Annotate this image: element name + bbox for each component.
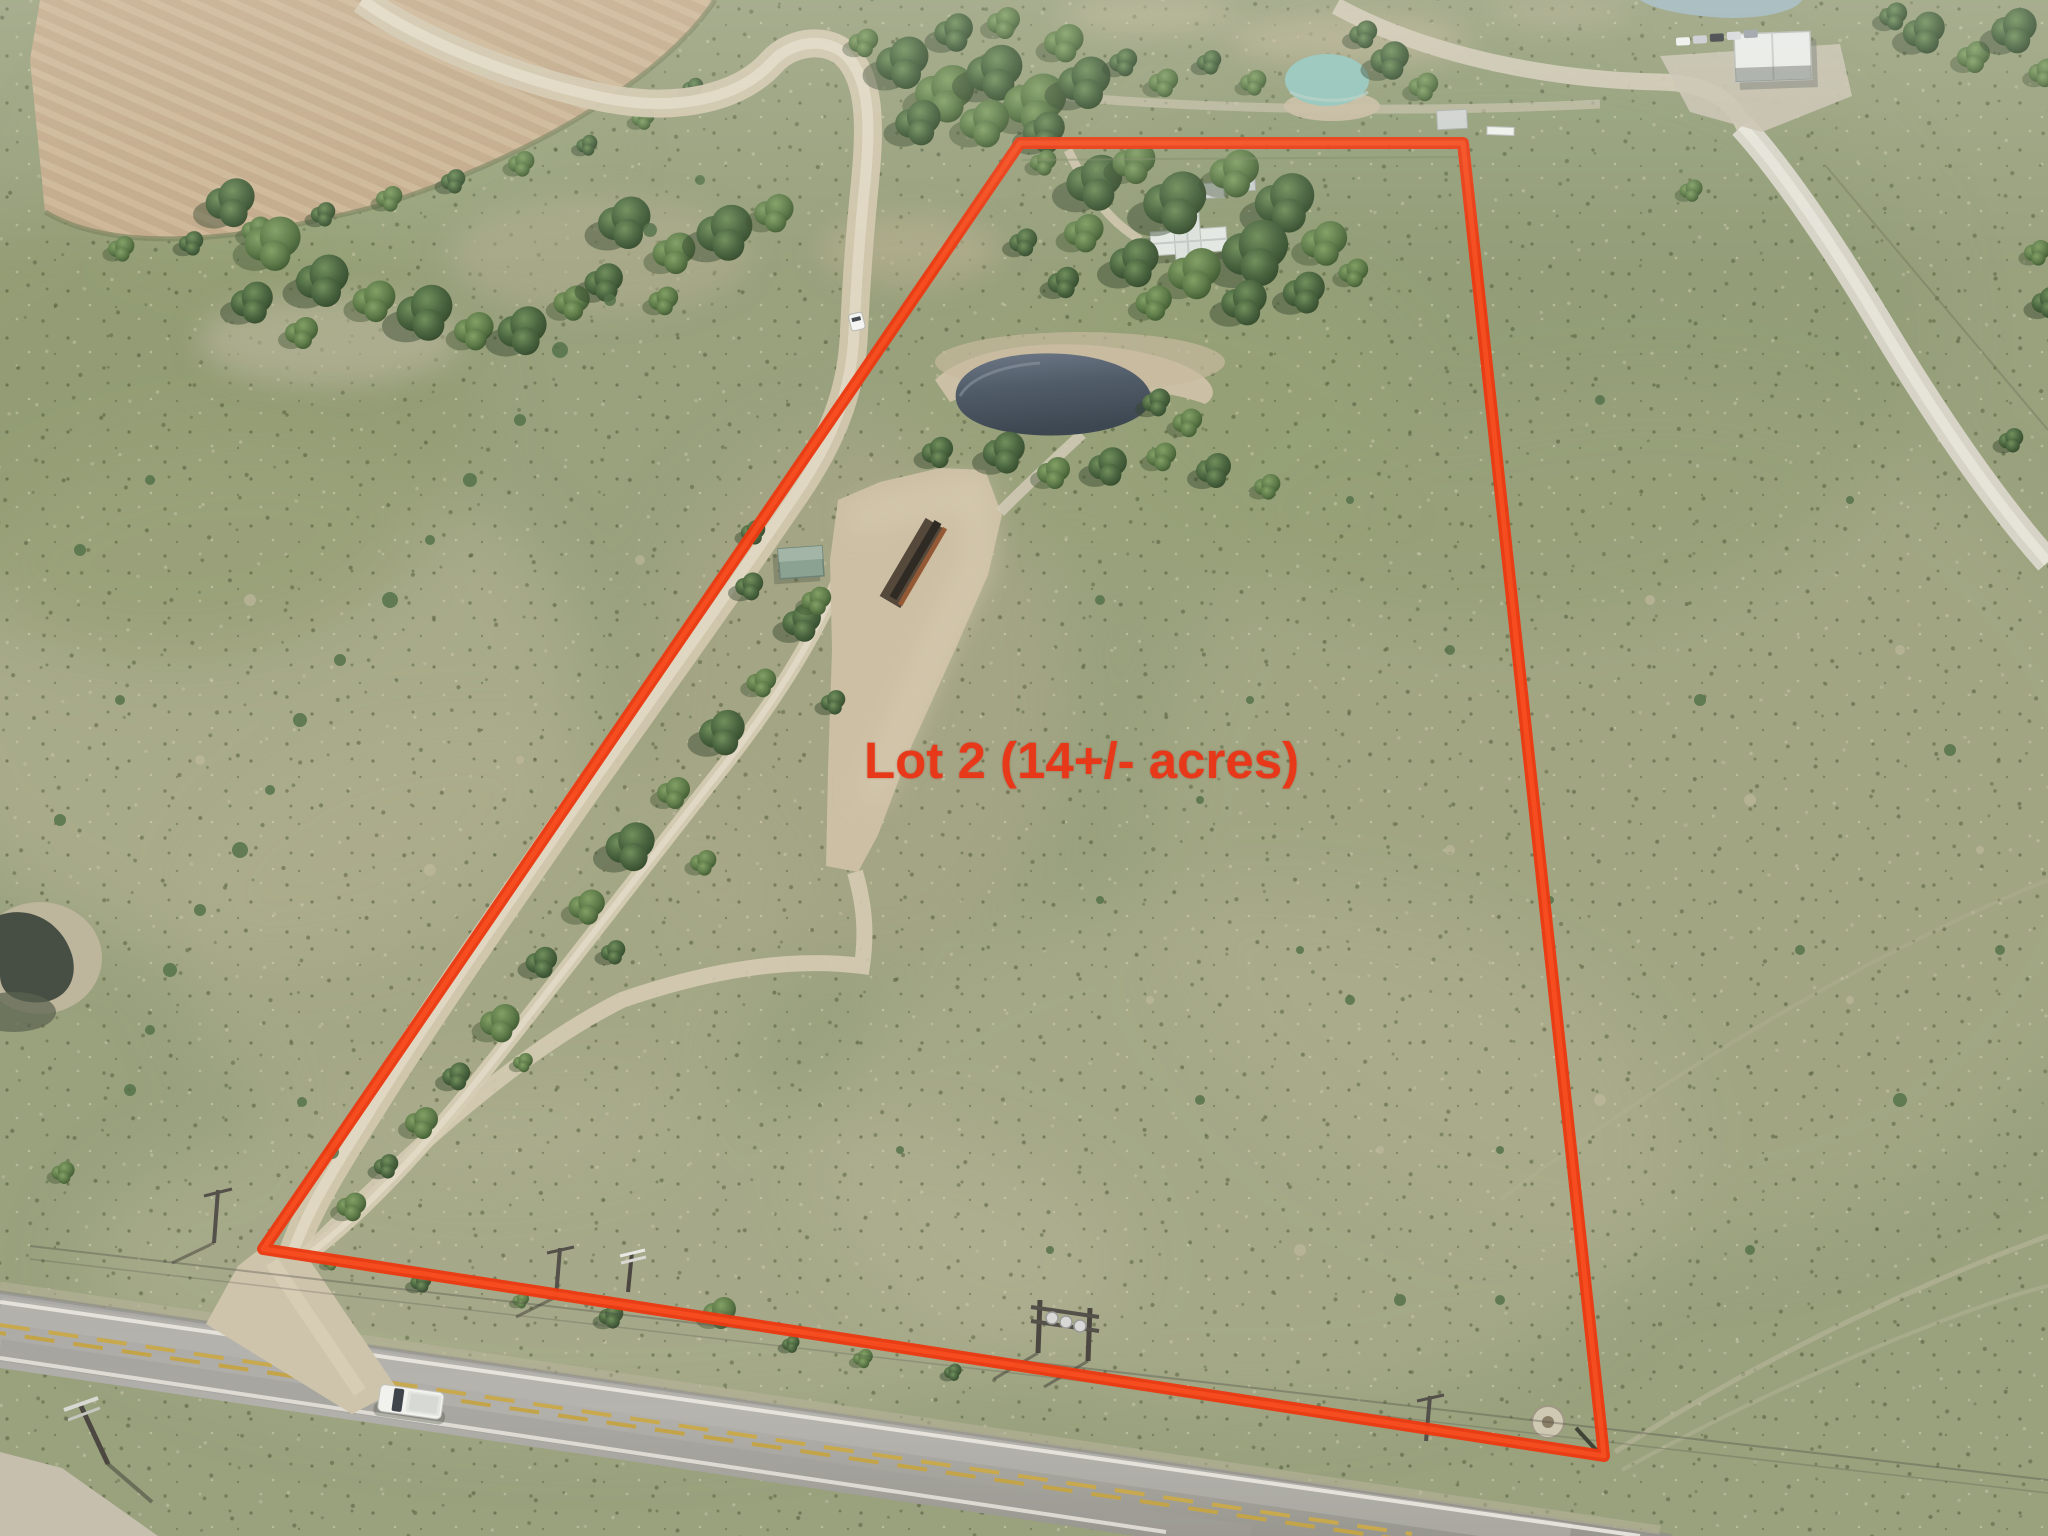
aerial-photo: Lot 2 (14+/- acres) — [0, 0, 2048, 1536]
green-shed — [772, 546, 824, 584]
lot-size-label: Lot 2 (14+/- acres) — [864, 731, 1299, 790]
